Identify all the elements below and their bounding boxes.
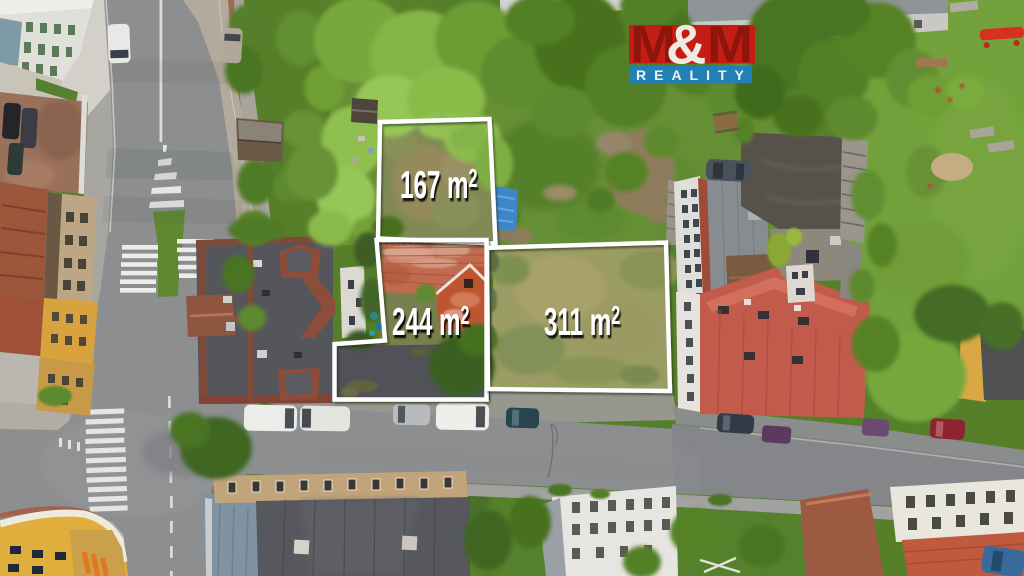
svg-text:244 m2: 244 m2 xyxy=(392,300,470,343)
svg-text:REALITY: REALITY xyxy=(636,67,752,83)
svg-text:167 m2: 167 m2 xyxy=(400,163,478,206)
svg-text:311 m2: 311 m2 xyxy=(544,300,620,343)
svg-text:M: M xyxy=(707,16,753,74)
